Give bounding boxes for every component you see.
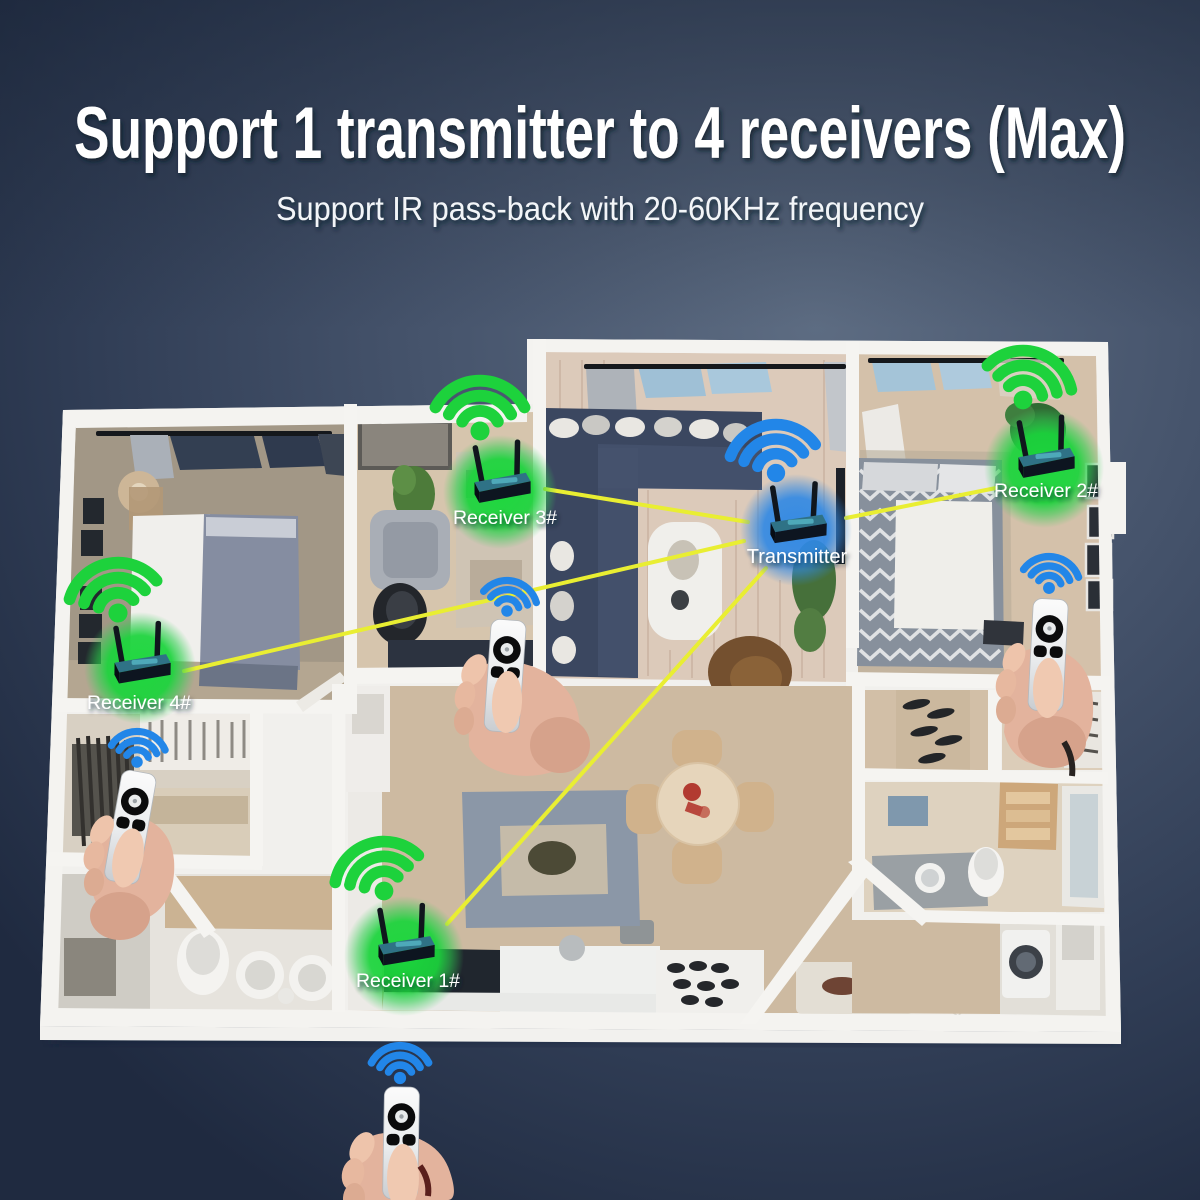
svg-text:Receiver 4#: Receiver 4# <box>87 692 191 714</box>
svg-text:Receiver 3#: Receiver 3# <box>453 507 557 529</box>
svg-text:Transmitter: Transmitter <box>747 546 848 568</box>
svg-text:Support IR pass-back with 20-6: Support IR pass-back with 20-60KHz frequ… <box>276 190 924 227</box>
svg-text:Support 1 transmitter to 4 rec: Support 1 transmitter to 4 receivers (Ma… <box>74 93 1126 174</box>
svg-text:Receiver 2#: Receiver 2# <box>994 480 1098 502</box>
svg-text:Receiver 1#: Receiver 1# <box>356 970 460 992</box>
